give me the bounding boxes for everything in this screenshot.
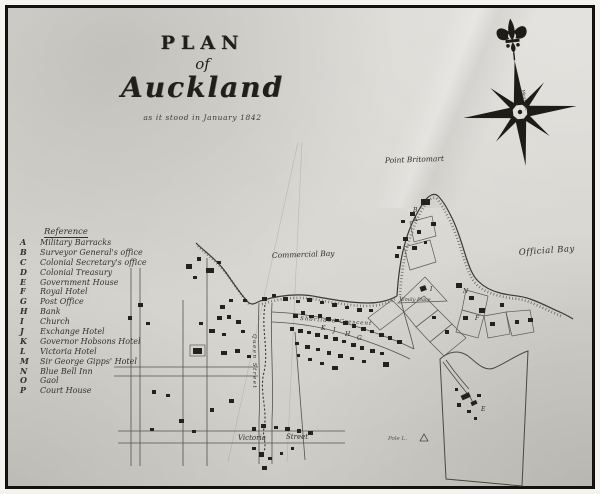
ref-name: Surveyor General's office — [40, 248, 143, 258]
ref-name: Colonial Secretary's office — [40, 258, 147, 268]
map-mark-g: G — [357, 335, 362, 342]
ref-name: Royal Hotel — [40, 287, 88, 297]
map-mark-k: K — [320, 325, 326, 332]
reference-row: EGovernment House — [20, 278, 195, 288]
ref-name: Exchange Hotel — [40, 327, 105, 337]
label-official-bay: Official Bay — [519, 244, 576, 258]
label-shortland-crescent: Shortland Crescent — [300, 316, 373, 327]
map-title-block: PLAN of Auckland as it stood in January … — [115, 32, 290, 122]
stream — [262, 305, 265, 452]
reference-row: LVictoria Hotel — [20, 347, 195, 357]
reference-row: FRoyal Hotel — [20, 287, 195, 297]
plot-outlines — [190, 216, 534, 356]
reference-row: JExchange Hotel — [20, 327, 195, 337]
label-emily-place: Emily Place — [400, 297, 431, 303]
reference-row: GPost Office — [20, 297, 195, 307]
fleur-de-lis-icon — [495, 17, 529, 62]
reference-header: Reference — [44, 227, 88, 238]
ref-letter: P — [20, 386, 40, 396]
ref-name: Victoria Hotel — [40, 347, 97, 357]
map-mark-f: F — [474, 315, 480, 322]
reference-row: MSir George Gipps' Hotel — [20, 357, 195, 367]
title-subtitle: as it stood in January 1842 — [115, 113, 290, 122]
map-mark-b: B — [412, 207, 418, 214]
label-victoria: Victoria — [238, 434, 266, 442]
ref-name: Gaol — [40, 376, 59, 386]
map-mark-a: A — [412, 216, 418, 223]
ref-name: Bank — [40, 307, 61, 317]
reference-row: AMilitary Barracks — [20, 238, 195, 248]
map-mark-h: H — [344, 331, 351, 338]
reference-row: OGaol — [20, 376, 195, 386]
ref-name: Post Office — [40, 297, 84, 307]
ref-name: Colonial Treasury — [40, 268, 112, 278]
label-point-britomart: Point Britomart — [384, 154, 445, 165]
reference-row: NBlue Bell Inn — [20, 367, 195, 377]
reference-row: BSurveyor General's office — [20, 248, 195, 258]
reference-row: KGovernor Hobsons Hotel — [20, 337, 195, 347]
reference-row: IChurch — [20, 317, 195, 327]
map-mark-i: I — [429, 286, 433, 293]
title-plan: PLAN — [115, 32, 290, 54]
label-victoria-street: Street — [286, 433, 308, 441]
map-mark-n: N — [462, 288, 469, 295]
reference-legend: Reference AMilitary Barracks BSurveyor G… — [20, 219, 195, 396]
ref-name: Government House — [40, 278, 118, 288]
compass-rose-icon: Magnetic — [453, 13, 582, 172]
label-commercial-bay: Commercial Bay — [272, 249, 336, 260]
scanned-map-photo: B A I E G H J K F N Point Britomart Comm… — [0, 0, 600, 494]
coastline — [196, 194, 573, 319]
ref-name: Military Barracks — [40, 238, 111, 248]
reference-row: CColonial Secretary's office — [20, 258, 195, 268]
title-city: Auckland — [115, 71, 290, 104]
label-queen-street: Queen Street — [251, 334, 257, 389]
place-labels: Point Britomart Commercial Bay Official … — [238, 154, 575, 442]
coast-hatching — [198, 198, 561, 316]
ref-name: Blue Bell Inn — [40, 367, 93, 377]
ref-name: Church — [40, 317, 70, 327]
reference-row: PCourt House — [20, 386, 195, 396]
ref-name: Sir George Gipps' Hotel — [40, 357, 137, 367]
ref-name: Governor Hobsons Hotel — [40, 337, 141, 347]
reference-row: DColonial Treasury — [20, 268, 195, 278]
map-mark-e: E — [480, 406, 486, 413]
reference-row: HBank — [20, 307, 195, 317]
ref-name: Court House — [40, 386, 91, 396]
label-pole-lane: Pole L. — [387, 436, 407, 442]
